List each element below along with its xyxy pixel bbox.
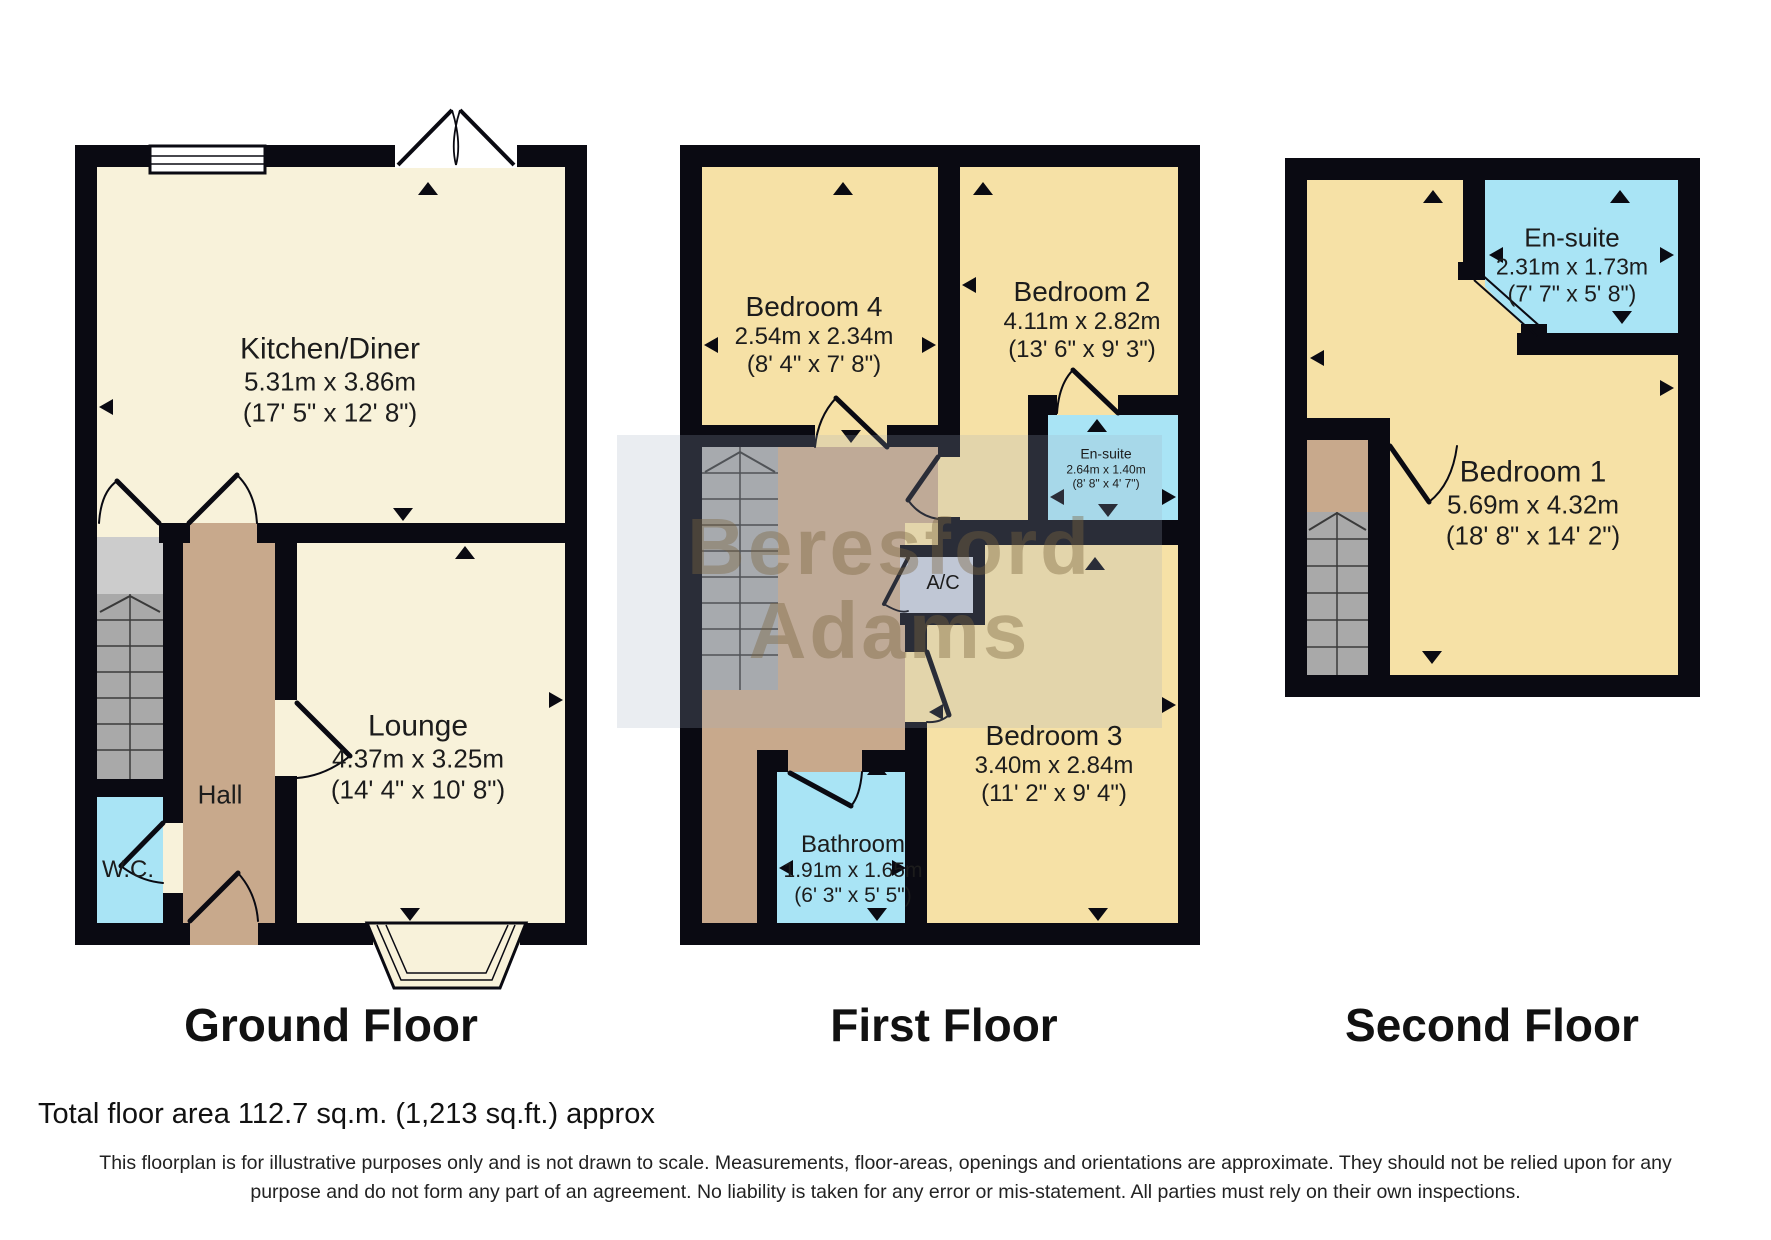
room-imperial: (8' 4" x 7' 8") <box>735 352 894 380</box>
title-second-floor: Second Floor <box>1345 998 1639 1052</box>
label-ac: A/C <box>926 572 959 596</box>
room-metric: 5.69m x 4.32m <box>1446 490 1620 521</box>
room-name: Bedroom 3 <box>975 719 1134 752</box>
room-hall <box>183 523 275 923</box>
room-metric: 4.37m x 3.25m <box>331 744 505 775</box>
room-imperial: (13' 6" x 9' 3") <box>1004 337 1161 365</box>
label-bedroom-4: Bedroom 4 2.54m x 2.34m (8' 4" x 7' 8") <box>735 290 894 380</box>
room-name: Kitchen/Diner <box>240 332 420 367</box>
room-name: Bedroom 1 <box>1446 455 1620 490</box>
bay-window-icon <box>367 923 526 988</box>
room-name: Bathroom <box>784 831 923 859</box>
room-imperial: (8' 8" x 4' 7") <box>1066 476 1145 490</box>
label-wc: W.C. <box>102 856 154 884</box>
label-bedroom-1: Bedroom 1 5.69m x 4.32m (18' 8" x 14' 2"… <box>1446 455 1620 552</box>
room-imperial: (6' 3" x 5' 5") <box>784 884 923 909</box>
total-floor-area-text: Total floor area 112.7 sq.m. (1,213 sq.f… <box>38 1098 655 1131</box>
understairs-store <box>97 537 163 594</box>
label-hall: Hall <box>198 780 243 811</box>
room-imperial: (18' 8" x 14' 2") <box>1446 521 1620 552</box>
title-ground-floor: Ground Floor <box>184 998 478 1052</box>
label-ensuite-second: En-suite 2.31m x 1.73m (7' 7" x 5' 8") <box>1496 223 1648 308</box>
label-ensuite-first: En-suite 2.64m x 1.40m (8' 8" x 4' 7") <box>1066 446 1145 491</box>
title-first-floor: First Floor <box>830 998 1057 1052</box>
room-imperial: (7' 7" x 5' 8") <box>1496 280 1648 307</box>
label-bathroom: Bathroom 1.91m x 1.65m (6' 3" x 5' 5") <box>784 831 923 909</box>
room-imperial: (14' 4" x 10' 8") <box>331 775 505 806</box>
landing-second-floor <box>1307 440 1368 512</box>
room-name: En-suite <box>1066 446 1145 463</box>
stairs-ground-floor <box>97 594 163 779</box>
room-metric: 2.64m x 1.40m <box>1066 462 1145 476</box>
disclaimer-line2: purpose and do not form any part of an a… <box>0 1181 1771 1204</box>
watermark-text-line2: Adams <box>617 589 1162 673</box>
room-metric: 3.40m x 2.84m <box>975 752 1134 780</box>
room-metric: 2.54m x 2.34m <box>735 323 894 351</box>
room-name: Bedroom 4 <box>735 290 894 323</box>
label-kitchen-diner: Kitchen/Diner 5.31m x 3.86m (17' 5" x 12… <box>240 332 420 429</box>
label-lounge: Lounge 4.37m x 3.25m (14' 4" x 10' 8") <box>331 709 505 806</box>
room-metric: 4.11m x 2.82m <box>1004 308 1161 336</box>
room-name: En-suite <box>1496 223 1648 254</box>
room-name: Bedroom 2 <box>1004 275 1161 308</box>
room-name: Lounge <box>331 709 505 744</box>
kitchen-window-icon <box>150 146 265 173</box>
floorplan-page: Beresford Adams Kitchen/Diner 5.31m x 3.… <box>0 0 1771 1240</box>
room-metric: 1.91m x 1.65m <box>784 859 923 884</box>
disclaimer-line1: This floorplan is for illustrative purpo… <box>0 1152 1771 1175</box>
stairs-second-floor <box>1307 512 1368 675</box>
room-imperial: (11' 2" x 9' 4") <box>975 781 1134 809</box>
room-imperial: (17' 5" x 12' 8") <box>240 398 420 429</box>
room-metric: 5.31m x 3.86m <box>240 367 420 398</box>
label-bedroom-2: Bedroom 2 4.11m x 2.82m (13' 6" x 9' 3") <box>1004 275 1161 365</box>
watermark-text-line1: Beresford <box>617 505 1162 589</box>
label-bedroom-3: Bedroom 3 3.40m x 2.84m (11' 2" x 9' 4") <box>975 719 1134 809</box>
room-metric: 2.31m x 1.73m <box>1496 253 1648 280</box>
